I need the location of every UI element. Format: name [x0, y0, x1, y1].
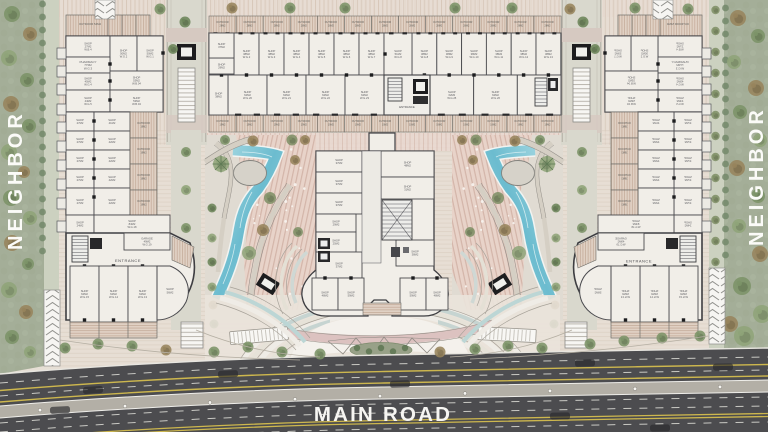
- svg-text:SHOP59M2: SHOP59M2: [347, 291, 355, 298]
- svg-text:19M2: 19M2: [220, 124, 227, 127]
- svg-text:19M2: 19M2: [140, 152, 147, 155]
- svg-text:19M2: 19M2: [328, 124, 335, 127]
- svg-text:28M2: 28M2: [436, 25, 443, 28]
- svg-text:19M2: 19M2: [463, 124, 470, 127]
- svg-text:MAIN ROAD: MAIN ROAD: [314, 403, 452, 426]
- svg-text:SHOP38M2W.G.8: SHOP38M2W.G.8: [421, 49, 429, 59]
- svg-text:SHOP59M2: SHOP59M2: [409, 291, 417, 298]
- svg-text:19M2: 19M2: [140, 204, 147, 207]
- svg-text:SHOP50M2W.G.1: SHOP50M2W.G.1: [146, 49, 154, 59]
- svg-text:28M2: 28M2: [409, 25, 416, 28]
- svg-text:28M2: 28M2: [220, 25, 227, 28]
- svg-text:SHOP27M2W.B.4: SHOP27M2W.B.4: [84, 42, 92, 52]
- svg-text:SHOP51M2W.G.8: SHOP51M2W.G.8: [394, 49, 402, 59]
- svg-text:SHOP27M2: SHOP27M2: [76, 137, 84, 144]
- svg-text:SHOP24M2: SHOP24M2: [76, 221, 84, 228]
- svg-text:SHOP41M2: SHOP41M2: [108, 118, 116, 125]
- svg-text:SHOP: SHOP: [166, 287, 174, 291]
- svg-text:28M2: 28M2: [545, 25, 552, 28]
- svg-text:SHOP38M2W.G.5: SHOP38M2W.G.5: [318, 49, 326, 59]
- svg-text:SHOP37M2: SHOP37M2: [335, 262, 343, 269]
- svg-text:SHOP37M2: SHOP37M2: [218, 42, 226, 49]
- svg-text:SHOP29M2: SHOP29M2: [218, 63, 226, 70]
- svg-text:SHOP37M2: SHOP37M2: [335, 179, 343, 186]
- svg-text:28M2: 28M2: [517, 25, 524, 28]
- svg-text:28M2: 28M2: [355, 25, 362, 28]
- svg-text:19M2: 19M2: [545, 124, 552, 127]
- svg-text:28M2: 28M2: [274, 25, 281, 28]
- svg-text:SHOP38M2W.G.2: SHOP38M2W.G.2: [243, 49, 251, 59]
- svg-text:56M2: 56M2: [167, 291, 174, 295]
- svg-text:19M2: 19M2: [436, 124, 443, 127]
- svg-text:SHOP48M2: SHOP48M2: [321, 291, 329, 298]
- svg-text:SHOP25M2: SHOP25M2: [332, 239, 340, 246]
- svg-text:SHUP42M2: SHUP42M2: [108, 137, 116, 144]
- svg-text:SHOP38M2: SHOP38M2: [215, 92, 223, 99]
- svg-text:19M2: 19M2: [247, 124, 254, 127]
- svg-text:SHOP38M2W.G.4: SHOP38M2W.G.4: [293, 49, 301, 59]
- svg-text:28M2: 28M2: [301, 25, 308, 28]
- svg-text:28M2: 28M2: [328, 25, 335, 28]
- svg-text:19M2: 19M2: [409, 124, 416, 127]
- svg-text:19M2: 19M2: [382, 124, 389, 127]
- svg-text:SHOP29M2: SHOP29M2: [332, 220, 340, 227]
- svg-text:SHOP37M2: SHOP37M2: [335, 200, 343, 207]
- svg-text:19M2: 19M2: [517, 124, 524, 127]
- svg-text:28M2: 28M2: [382, 25, 389, 28]
- svg-text:SHOP45M2W.G.4: SHOP45M2W.G.4: [84, 77, 92, 87]
- svg-text:SHOP38M2W.G.9: SHOP38M2W.G.9: [445, 49, 453, 59]
- svg-text:SHUP42M2: SHUP42M2: [108, 175, 116, 182]
- svg-text:SHOP44M2W.G.5: SHOP44M2W.G.5: [84, 96, 92, 106]
- svg-text:SHOP38M2W.G.6: SHOP38M2W.G.6: [343, 49, 351, 59]
- svg-text:SHOP27M2: SHOP27M2: [76, 156, 84, 163]
- svg-text:ENTRANCE: ENTRANCE: [626, 259, 652, 264]
- svg-text:SHOP27M2: SHOP27M2: [76, 198, 84, 205]
- svg-text:19M2: 19M2: [355, 124, 362, 127]
- svg-text:OUTDOOR 54M2: OUTDOOR 54M2: [79, 22, 102, 26]
- svg-text:SHOP50M2W.G.2: SHOP50M2W.G.2: [120, 49, 128, 59]
- svg-text:28M2: 28M2: [463, 25, 470, 28]
- svg-text:SHOP38M2W.G.7: SHOP38M2W.G.7: [368, 49, 376, 59]
- svg-text:NEIGHBOR: NEIGHBOR: [746, 106, 768, 246]
- svg-text:19M2: 19M2: [490, 124, 497, 127]
- svg-text:SHOP48M2: SHOP48M2: [433, 291, 441, 298]
- svg-text:SHOP27M2: SHOP27M2: [76, 175, 84, 182]
- svg-text:ENTRANCE: ENTRANCE: [399, 105, 415, 109]
- svg-text:SHOP42M2: SHOP42M2: [108, 198, 116, 205]
- svg-text:19M2: 19M2: [140, 178, 147, 181]
- svg-text:ENTRANCE: ENTRANCE: [115, 258, 141, 263]
- svg-text:SHOP48M2: SHOP48M2: [404, 161, 412, 168]
- svg-text:NEIGHBOR: NEIGHBOR: [5, 110, 27, 250]
- svg-text:SHOP37M2: SHOP37M2: [335, 158, 343, 165]
- svg-text:SHOP38M2W.G.3: SHOP38M2W.G.3: [268, 49, 276, 59]
- svg-text:SHOP27M2: SHOP27M2: [76, 118, 84, 125]
- svg-text:28M2: 28M2: [247, 25, 254, 28]
- svg-text:SHOP42M2: SHOP42M2: [108, 156, 116, 163]
- svg-text:19M2: 19M2: [274, 124, 281, 127]
- svg-text:SHOP38M2: SHOP38M2: [411, 250, 419, 257]
- svg-text:28M2: 28M2: [490, 25, 497, 28]
- svg-text:19M2: 19M2: [140, 126, 147, 129]
- svg-text:SHOP31M2: SHOP31M2: [404, 185, 412, 192]
- svg-text:19M2: 19M2: [301, 124, 308, 127]
